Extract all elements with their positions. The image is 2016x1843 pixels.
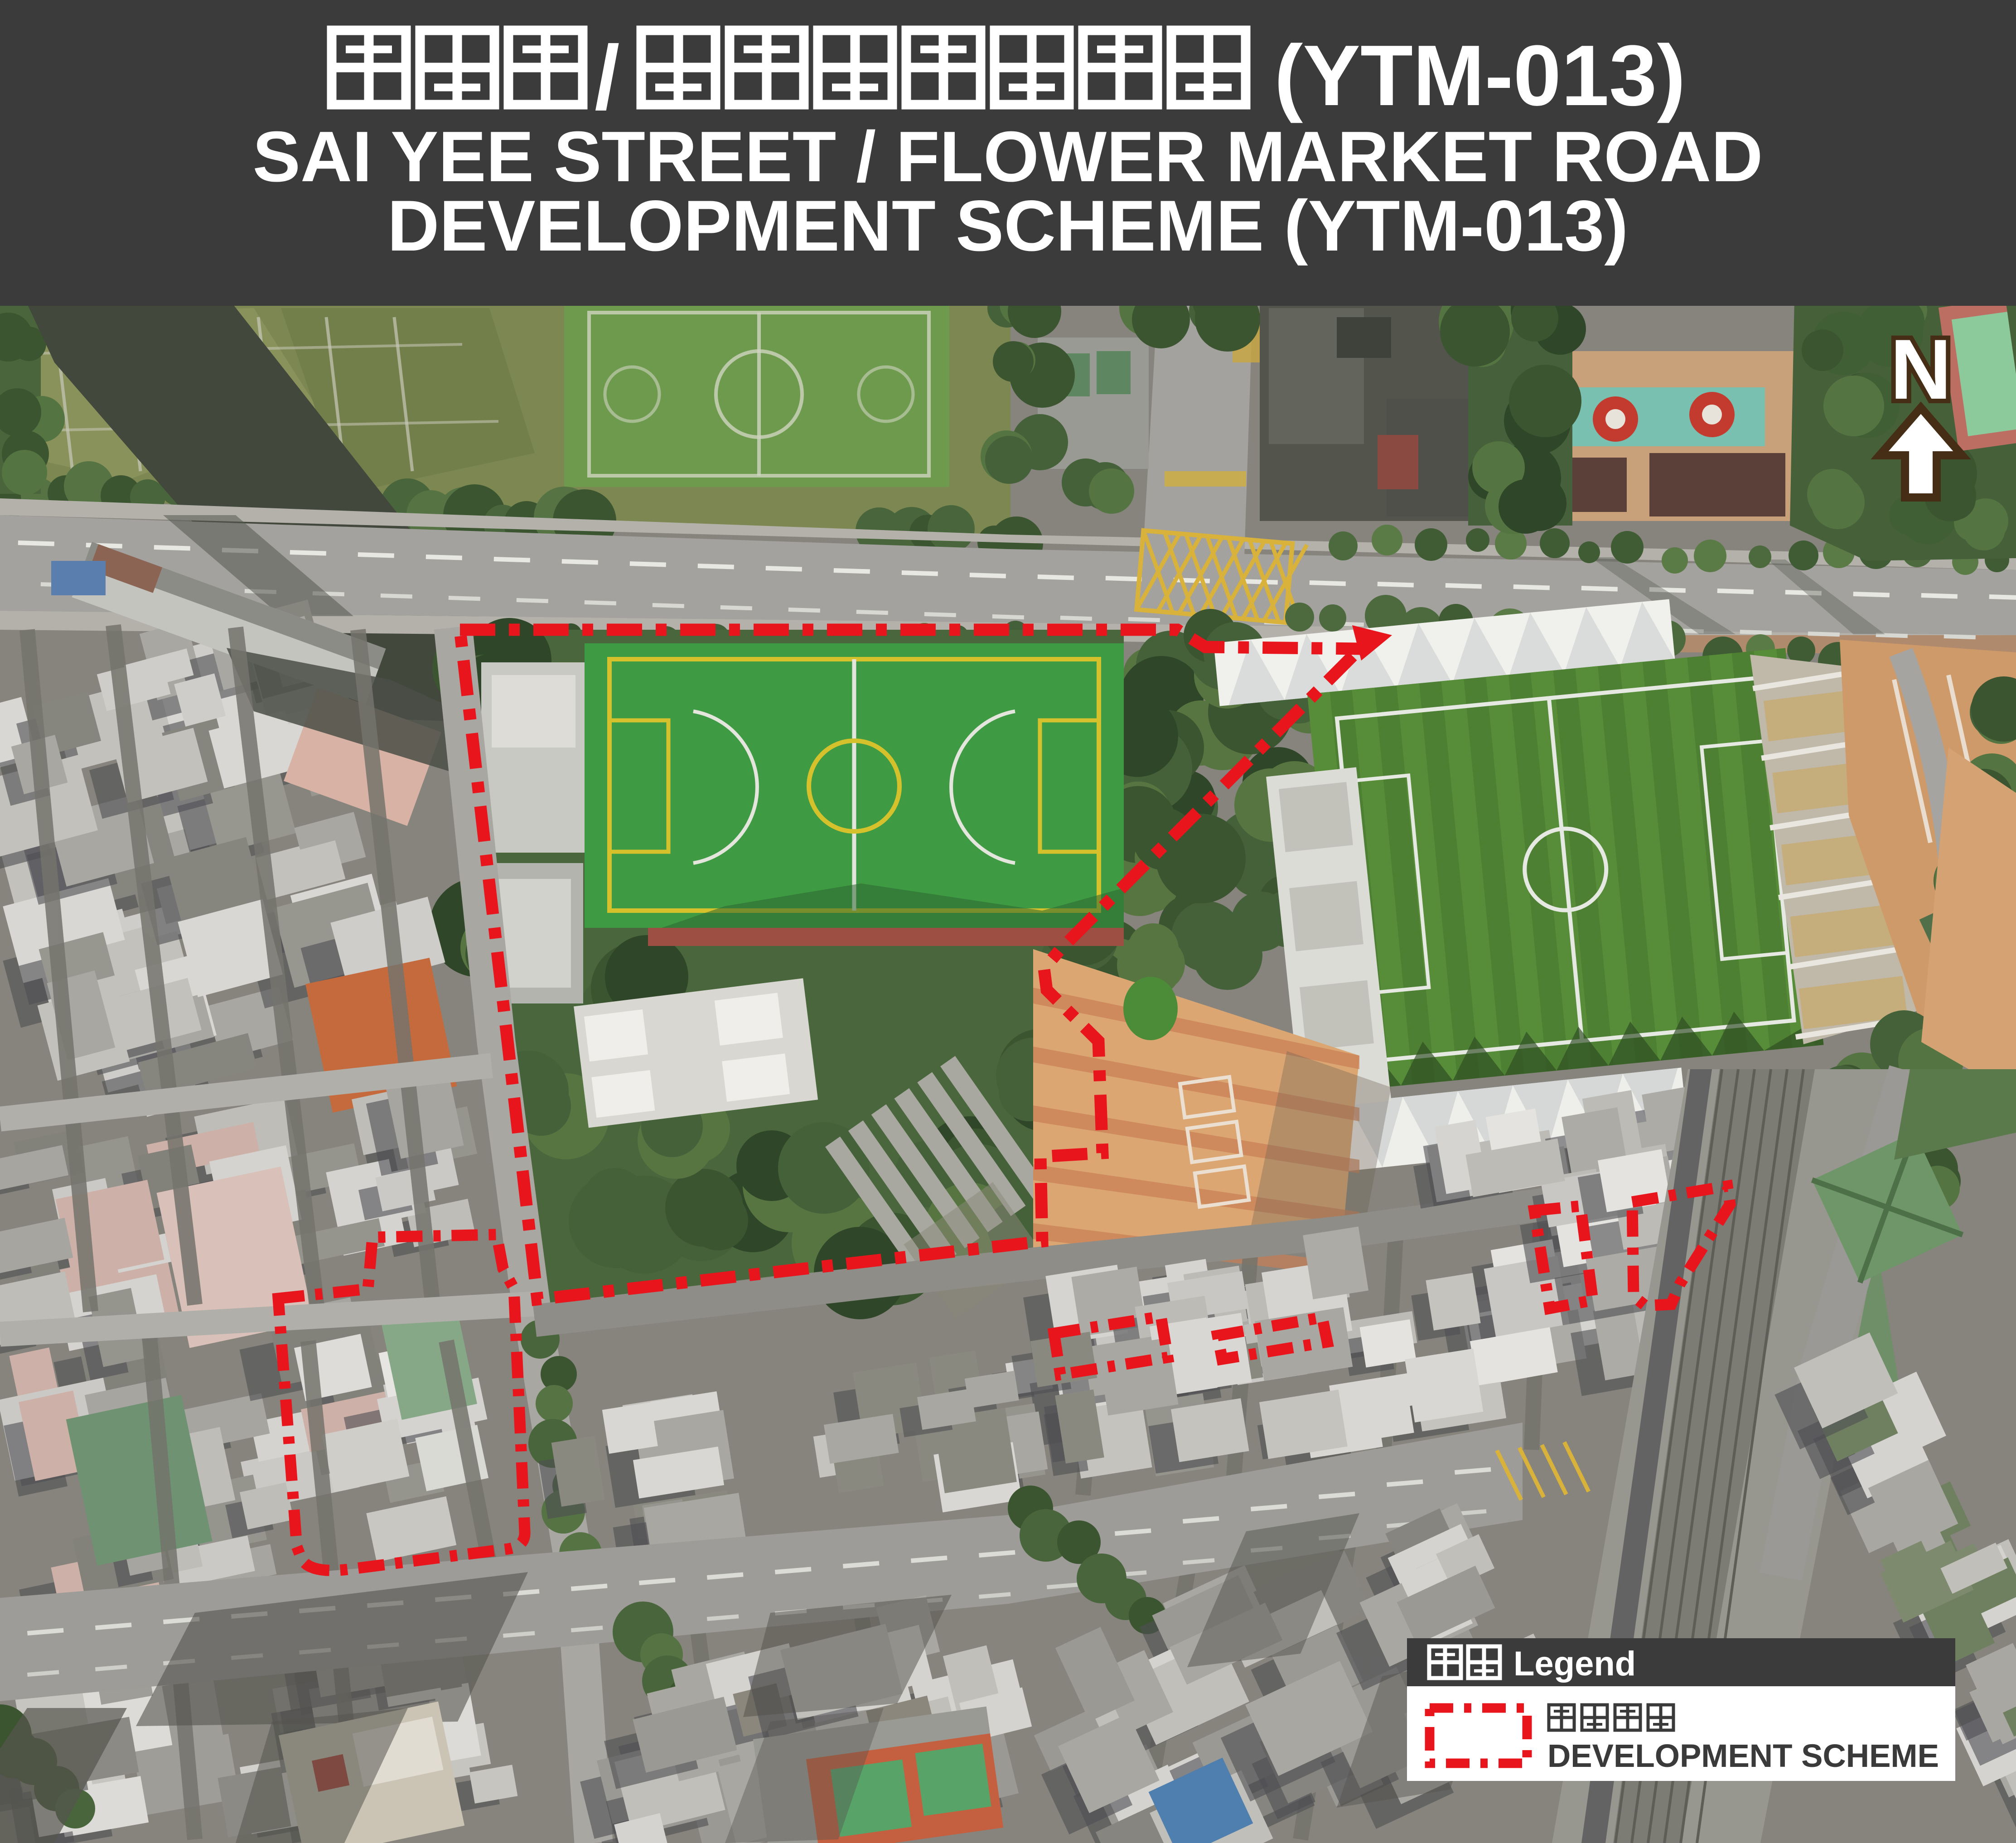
svg-text:DEVELOPMENT SCHEME (YTM-013): DEVELOPMENT SCHEME (YTM-013) [387, 185, 1629, 266]
svg-text:DEVELOPMENT SCHEME: DEVELOPMENT SCHEME [1547, 1738, 1939, 1774]
svg-text:SAI YEE STREET / FLOWER MARKET: SAI YEE STREET / FLOWER MARKET ROAD [253, 117, 1763, 197]
svg-text:(YTM-013): (YTM-013) [1274, 28, 1686, 124]
svg-text:Legend: Legend [1513, 1645, 1636, 1683]
svg-text:/: / [595, 27, 620, 128]
